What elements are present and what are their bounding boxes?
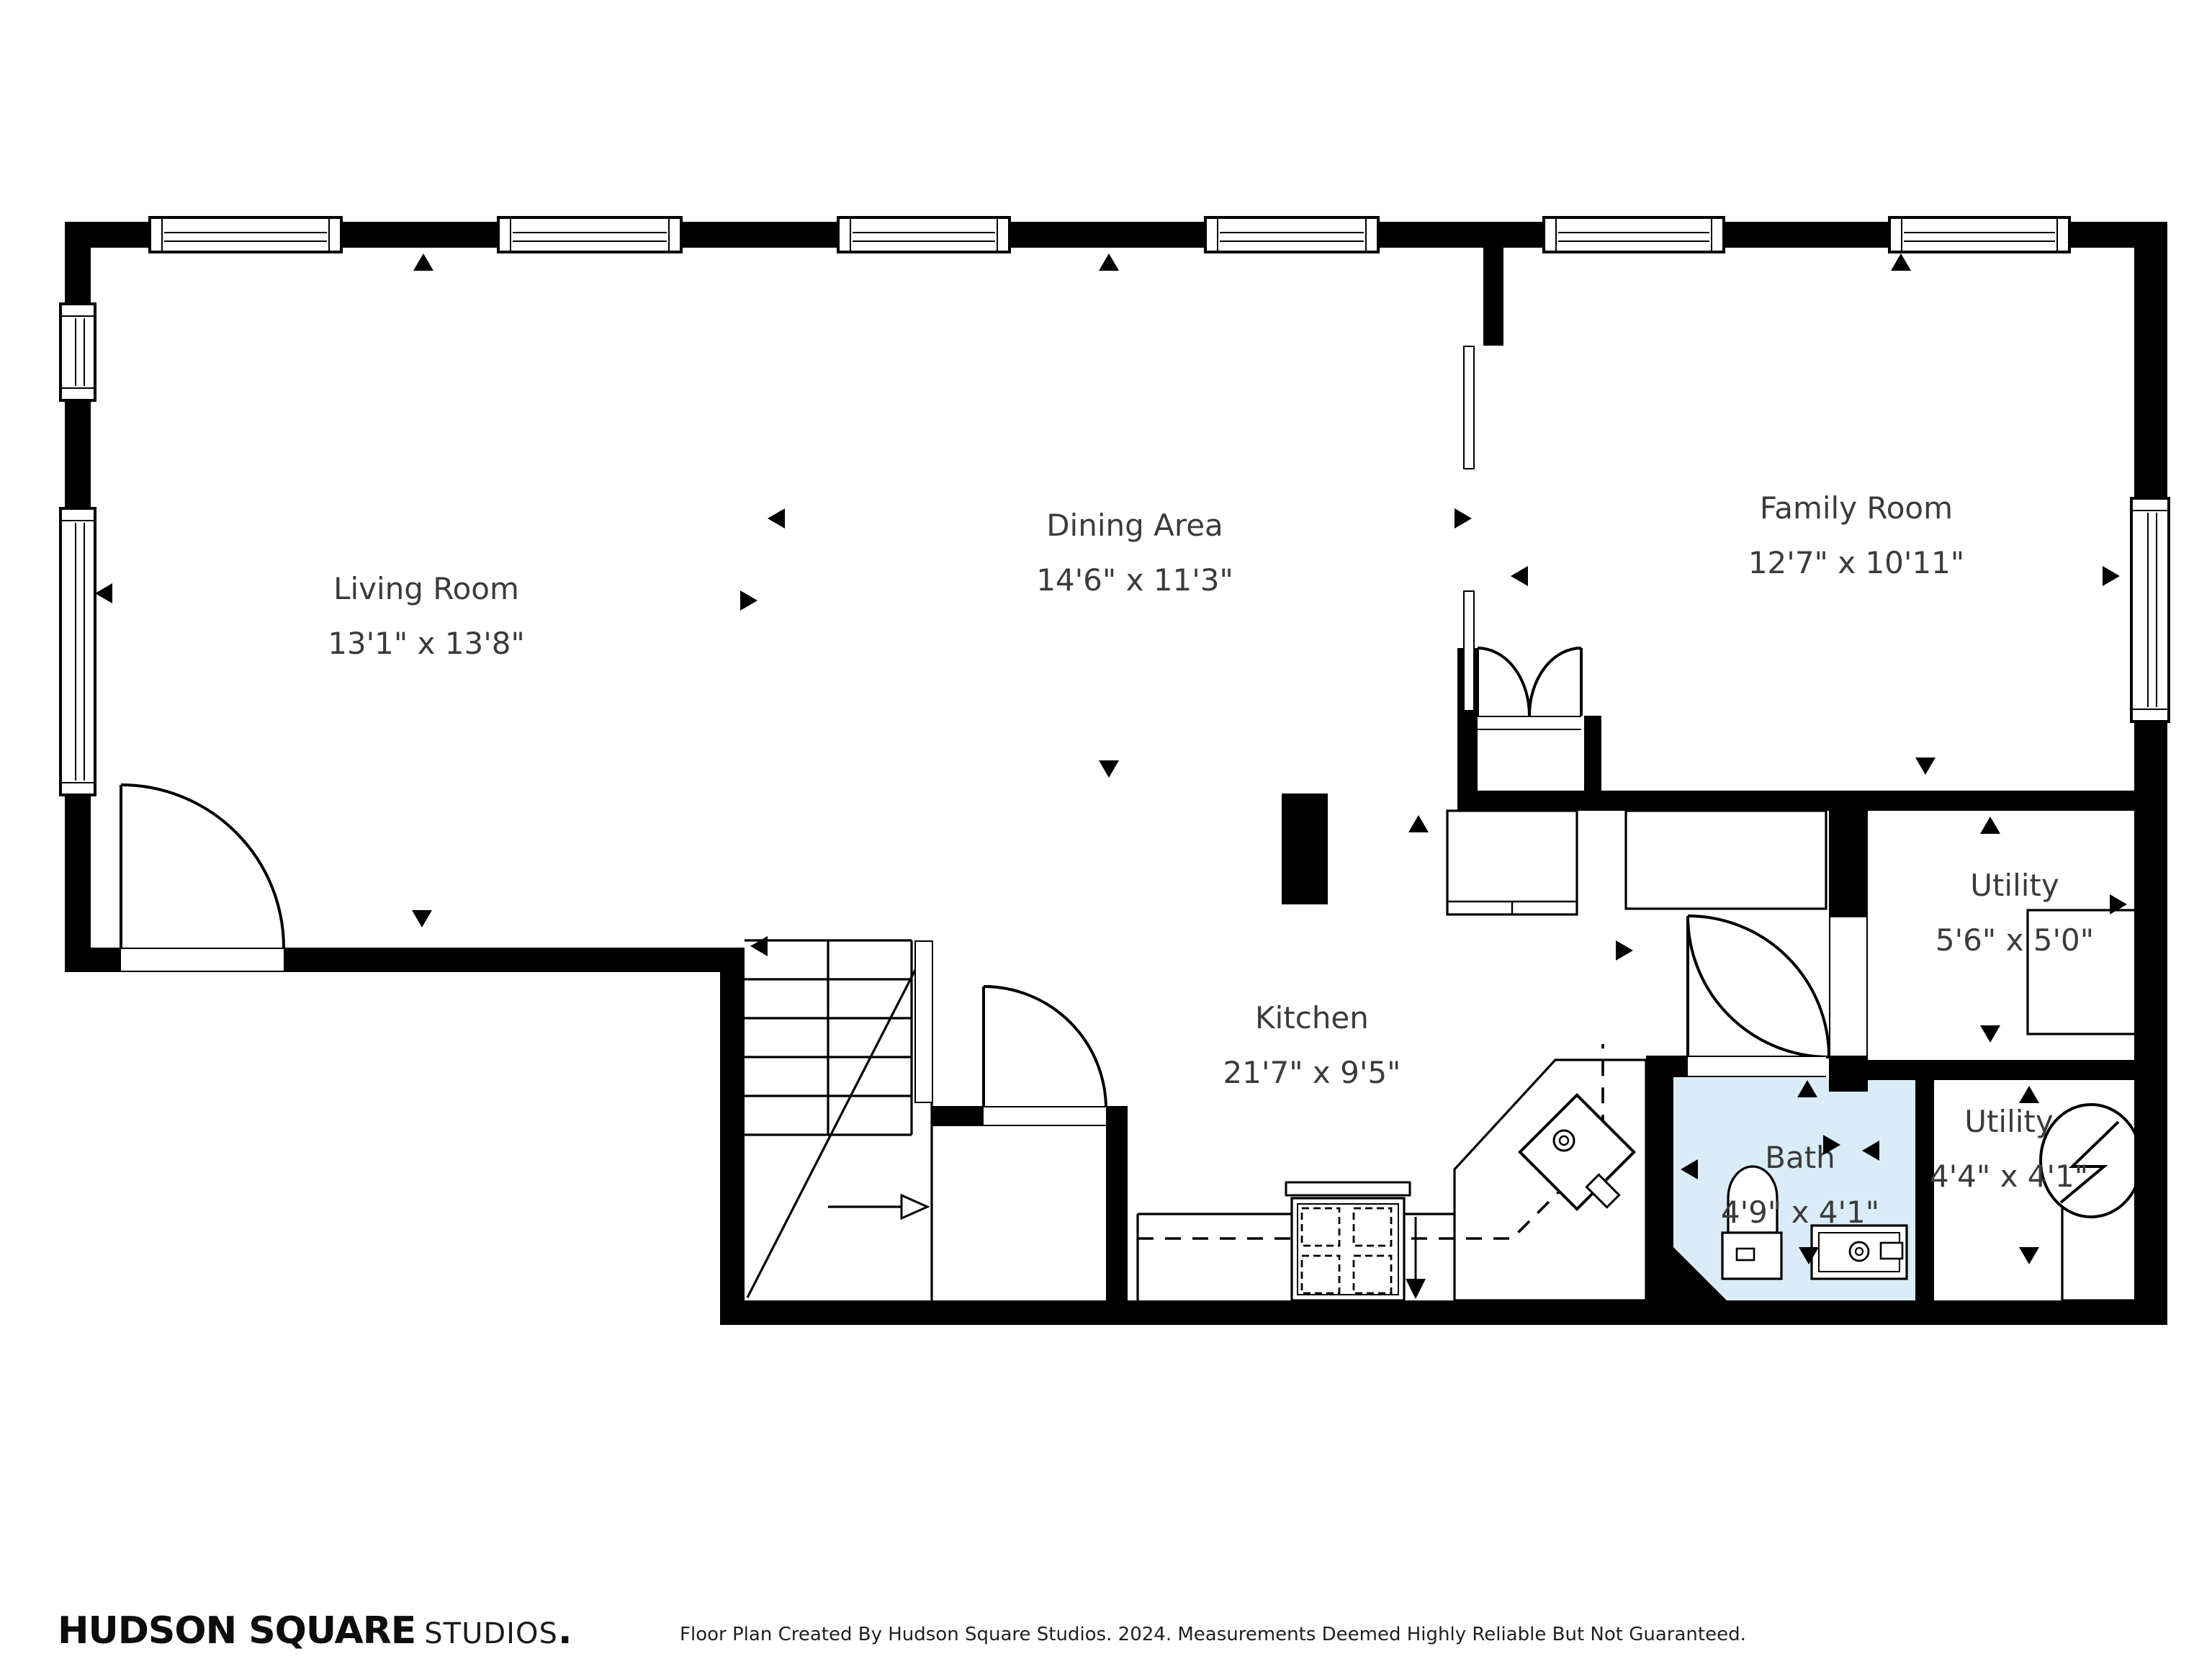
brand-secondary: STUDIOS [424,1616,558,1650]
room-dims: 21'7" x 9'5" [1223,1046,1401,1100]
pantry-door-opening [984,1106,1106,1126]
room-name: Kitchen [1223,991,1401,1046]
room-name: Dining Area [1036,498,1233,553]
room-name: Utility [1930,1094,2088,1149]
refrigerator-icon [1447,811,1577,914]
dimension-arrow-up-icon [1797,1080,1817,1097]
window-top-5 [1542,216,1725,253]
room-label-utility-top: Utility 5'6" x 5'0" [1935,858,2094,968]
dimension-arrow-down-icon [2019,1247,2039,1264]
bath-door-icon [1688,916,1829,1057]
window-top-3 [837,216,1011,253]
room-name: Utility [1935,858,2094,913]
staircase-icon [745,940,932,1300]
opening-jamb [1463,590,1475,711]
room-label-family: Family Room 12'7" x 10'11" [1748,481,1964,590]
room-label-living: Living Room 13'1" x 13'8" [328,562,525,671]
window-top-6 [1888,216,2071,253]
dimension-arrow-down-icon [1799,1247,1819,1264]
kitchen-inner-door-icon [984,986,1106,1109]
window-top-1 [148,216,343,253]
window-left-1 [59,302,96,402]
wall-bottom [720,1300,2167,1325]
bath-door-opening [1688,1056,1826,1077]
dimension-arrow-down-icon [1915,757,1935,775]
dimension-arrow-down-icon [1980,1025,2000,1043]
floor-plan-page: Living Room 13'1" x 13'8" Dining Area 14… [0,0,2212,1659]
brand-period: . [558,1610,572,1653]
dimension-arrow-up-icon [413,253,433,271]
window-top-4 [1204,216,1380,253]
room-dims: 4'9" x 4'1" [1721,1185,1879,1240]
dimension-arrow-right-icon [1823,1135,1840,1155]
dimension-arrow-down-icon [412,910,432,927]
room-dims: 4'4" x 4'1" [1930,1149,2088,1204]
dimension-arrow-up-icon [1980,817,2000,834]
opening-jamb [1463,346,1475,469]
wall-top [65,222,2167,248]
wall-between-utilities [1868,1060,2167,1080]
utility-door-icon [1688,916,1829,1057]
dimension-arrow-left-icon [1511,566,1528,586]
room-dims: 5'6" x 5'0" [1935,913,2094,968]
dimension-arrow-up-icon [1408,815,1429,832]
room-label-dining: Dining Area 14'6" x 11'3" [1036,498,1233,608]
dimension-arrow-left-icon [750,936,768,956]
wall-hall [1457,791,2167,811]
brand-primary: HUDSON SQUARE [58,1610,415,1653]
dimension-arrow-up-icon [2019,1086,2039,1103]
dimension-arrow-left-icon [95,583,112,603]
utility-door-leaf [1829,916,1868,1057]
wall-bath-left [1646,1056,1673,1300]
dimension-arrow-left-icon [768,508,785,529]
room-label-utility-bottom: Utility 4'4" x 4'1" [1930,1094,2088,1204]
dimension-arrow-right-icon [2110,894,2127,914]
window-top-2 [497,216,683,253]
wall-pantry-door-stub [932,1106,984,1126]
living-door-opening [121,948,284,972]
kitchen-sink-icon [1520,1095,1634,1209]
wall-stair-left [720,948,745,1325]
room-label-kitchen: Kitchen 21'7" x 9'5" [1223,991,1401,1100]
stair-direction-arrow-icon [902,1195,927,1218]
wall-pantry-right [1106,1106,1128,1300]
living-room-door-icon [121,785,284,948]
room-name: Family Room [1748,481,1964,536]
wall-utility-left-upper [1829,811,1868,916]
dimension-arrow-down-icon [1099,760,1119,778]
kitchen-counter-right [1626,811,1826,909]
chimney-block [1282,793,1328,904]
dimension-arrow-right-icon [2103,566,2120,586]
window-right-family [2130,497,2170,723]
dimension-arrow-left-icon [1862,1141,1879,1161]
wall-right [2134,222,2167,1325]
dimension-arrow-left-icon [1681,1159,1698,1179]
room-label-bath: Bath 4'9" x 4'1" [1721,1130,1879,1240]
room-dims: 12'7" x 10'11" [1748,536,1964,590]
dimension-arrow-up-icon [1099,253,1119,271]
closet-bifold-doors-icon [1478,648,1581,716]
dimension-arrow-right-icon [740,590,757,611]
window-left-2 [59,507,96,796]
wall-utility-left-lower [1829,1057,1868,1092]
room-dims: 13'1" x 13'8" [328,616,525,671]
disclaimer-text: Floor Plan Created By Hudson Square Stud… [680,1624,1746,1646]
stove-icon [1286,1182,1410,1300]
wall-divider-upper [1483,248,1503,346]
stair-side-wall [914,940,933,1103]
brand-logo: HUDSON SQUARESTUDIOS. [58,1610,572,1653]
room-name: Living Room [328,562,525,616]
closet-door-opening [1478,716,1581,730]
dimension-arrow-right-icon [1455,508,1472,529]
kitchen-dimension-line [1406,1217,1426,1299]
room-dims: 14'6" x 11'3" [1036,553,1233,608]
dimension-arrow-right-icon [1616,940,1633,961]
dimension-arrow-up-icon [1891,253,1911,271]
room-name: Bath [1721,1130,1879,1185]
